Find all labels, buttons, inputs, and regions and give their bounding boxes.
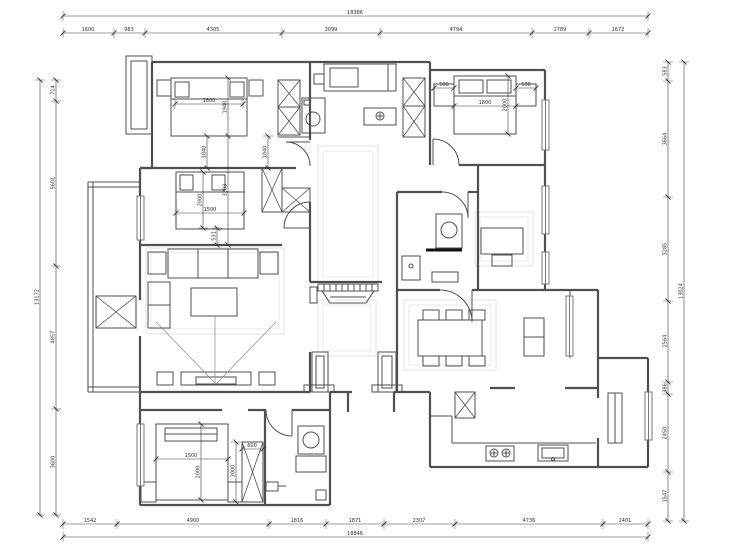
dim-label: 600: [247, 443, 257, 449]
floor-drain: [316, 490, 326, 500]
windows-layer: [88, 56, 652, 486]
wall-unit: [314, 74, 324, 84]
dim-label: 583: [663, 66, 669, 76]
dim-label: 4305: [207, 27, 220, 33]
dim-label: 4857: [51, 331, 57, 344]
dim-label: 4900: [187, 518, 200, 524]
dim-label: 3000: [231, 465, 237, 478]
rugs-layer: [146, 146, 533, 370]
tv-ray: [156, 322, 216, 384]
dim-label: 2000: [196, 466, 202, 479]
hall-rug: [318, 300, 376, 356]
dim-label: 5601: [51, 177, 57, 190]
door-arc: [440, 290, 472, 322]
dim-label: 2564: [663, 335, 669, 348]
corridor-rug: [318, 146, 378, 282]
bath-cabinet: [432, 272, 458, 282]
dim-label: 1800: [479, 100, 492, 106]
dim-label: 1401: [619, 518, 632, 524]
dim-label: 1500: [185, 453, 198, 459]
bed-second: [176, 172, 244, 229]
dim-label: 1940: [223, 101, 229, 114]
corridor-rug-inner: [323, 151, 373, 277]
dim-label: 1500: [204, 207, 217, 213]
kitchen-sink-basin: [542, 448, 564, 458]
dim-label: 1600: [82, 27, 95, 33]
pillow: [459, 80, 483, 93]
ac-platform-inner: [131, 61, 147, 129]
toilet-bowl: [303, 432, 319, 448]
dining-table: [418, 320, 482, 356]
nightstand: [157, 80, 171, 96]
tv-side-unit: [157, 372, 173, 385]
dimensions-layer: 1838616009834305309947941789167215424900…: [35, 10, 690, 542]
dim-label: 2000: [503, 99, 509, 112]
dim-label: 1547: [663, 490, 669, 503]
dim-label: 2450: [663, 427, 669, 440]
console-bracket: [310, 287, 317, 303]
dim-label: 3664: [663, 133, 669, 146]
dim-label: 531: [212, 231, 218, 241]
dim-label: 4736: [523, 518, 536, 524]
door-arc: [266, 410, 292, 436]
entry-column: [378, 352, 396, 392]
dim-label: 3285: [663, 243, 669, 256]
floorplan-canvas: 1838616009834305309947941789167215424900…: [0, 0, 740, 555]
dim-label: 1542: [84, 518, 97, 524]
tv: [196, 377, 236, 384]
sink-tap: [552, 458, 555, 461]
toilet-bowl: [441, 222, 457, 238]
dim-label: 1040: [202, 146, 208, 159]
pillow: [230, 82, 244, 97]
nightstand: [249, 80, 263, 96]
dim-label: 13024: [679, 283, 685, 299]
daybed-pillow: [330, 68, 358, 87]
walls-layer: [140, 62, 648, 505]
hall-rug-inner: [323, 305, 371, 351]
dim-label: 18386: [347, 10, 363, 16]
pillow: [175, 82, 189, 97]
dim-label: 3203: [223, 184, 229, 197]
entry-column-inner: [316, 356, 324, 388]
dining-chair: [423, 310, 439, 320]
desk: [481, 228, 523, 254]
sink-drain: [409, 264, 413, 268]
tv-ray: [216, 322, 276, 384]
dim-label: 1800: [203, 98, 216, 104]
dim-label: 1871: [349, 518, 362, 524]
dim-label: 3600: [51, 456, 57, 469]
door-arc: [286, 142, 310, 166]
floor-plan-svg: 1838616009834305309947941789167215424900…: [0, 0, 740, 555]
dim-label: 2000: [198, 194, 204, 207]
toilet: [436, 214, 462, 248]
tv-side-unit: [259, 372, 275, 385]
study-rug: [475, 212, 533, 266]
dim-label: 386: [663, 383, 669, 393]
dim-label: 1040: [263, 146, 269, 159]
entry-column: [312, 352, 328, 392]
toilet: [298, 426, 324, 454]
pillow: [180, 175, 193, 190]
dim-label: 714: [51, 85, 57, 95]
dim-label: 1816: [291, 518, 304, 524]
dim-label: 1789: [554, 27, 567, 33]
bed-master: [171, 78, 247, 136]
dim-label: 983: [124, 27, 134, 33]
dim-label: 2307: [413, 518, 426, 524]
washer: [302, 98, 325, 133]
entry-column-inner: [382, 356, 392, 388]
dining-chair: [446, 310, 462, 320]
ac-platform: [126, 56, 152, 134]
dim-label: 13172: [35, 289, 41, 305]
vanity: [296, 456, 326, 472]
dim-label: 1672: [612, 27, 625, 33]
side-table: [260, 252, 278, 274]
nightstand: [228, 482, 243, 502]
dim-label: 4794: [450, 27, 463, 33]
door-arc: [433, 139, 459, 165]
coffee-table: [191, 288, 237, 316]
dim-label: 500: [439, 82, 449, 88]
washer-drum: [306, 112, 320, 126]
pillow: [487, 80, 511, 93]
dim-label: 3099: [325, 27, 338, 33]
shower-mixer: [266, 482, 278, 491]
dim-label: 18846: [347, 531, 363, 537]
dim-label: 500: [521, 82, 531, 88]
